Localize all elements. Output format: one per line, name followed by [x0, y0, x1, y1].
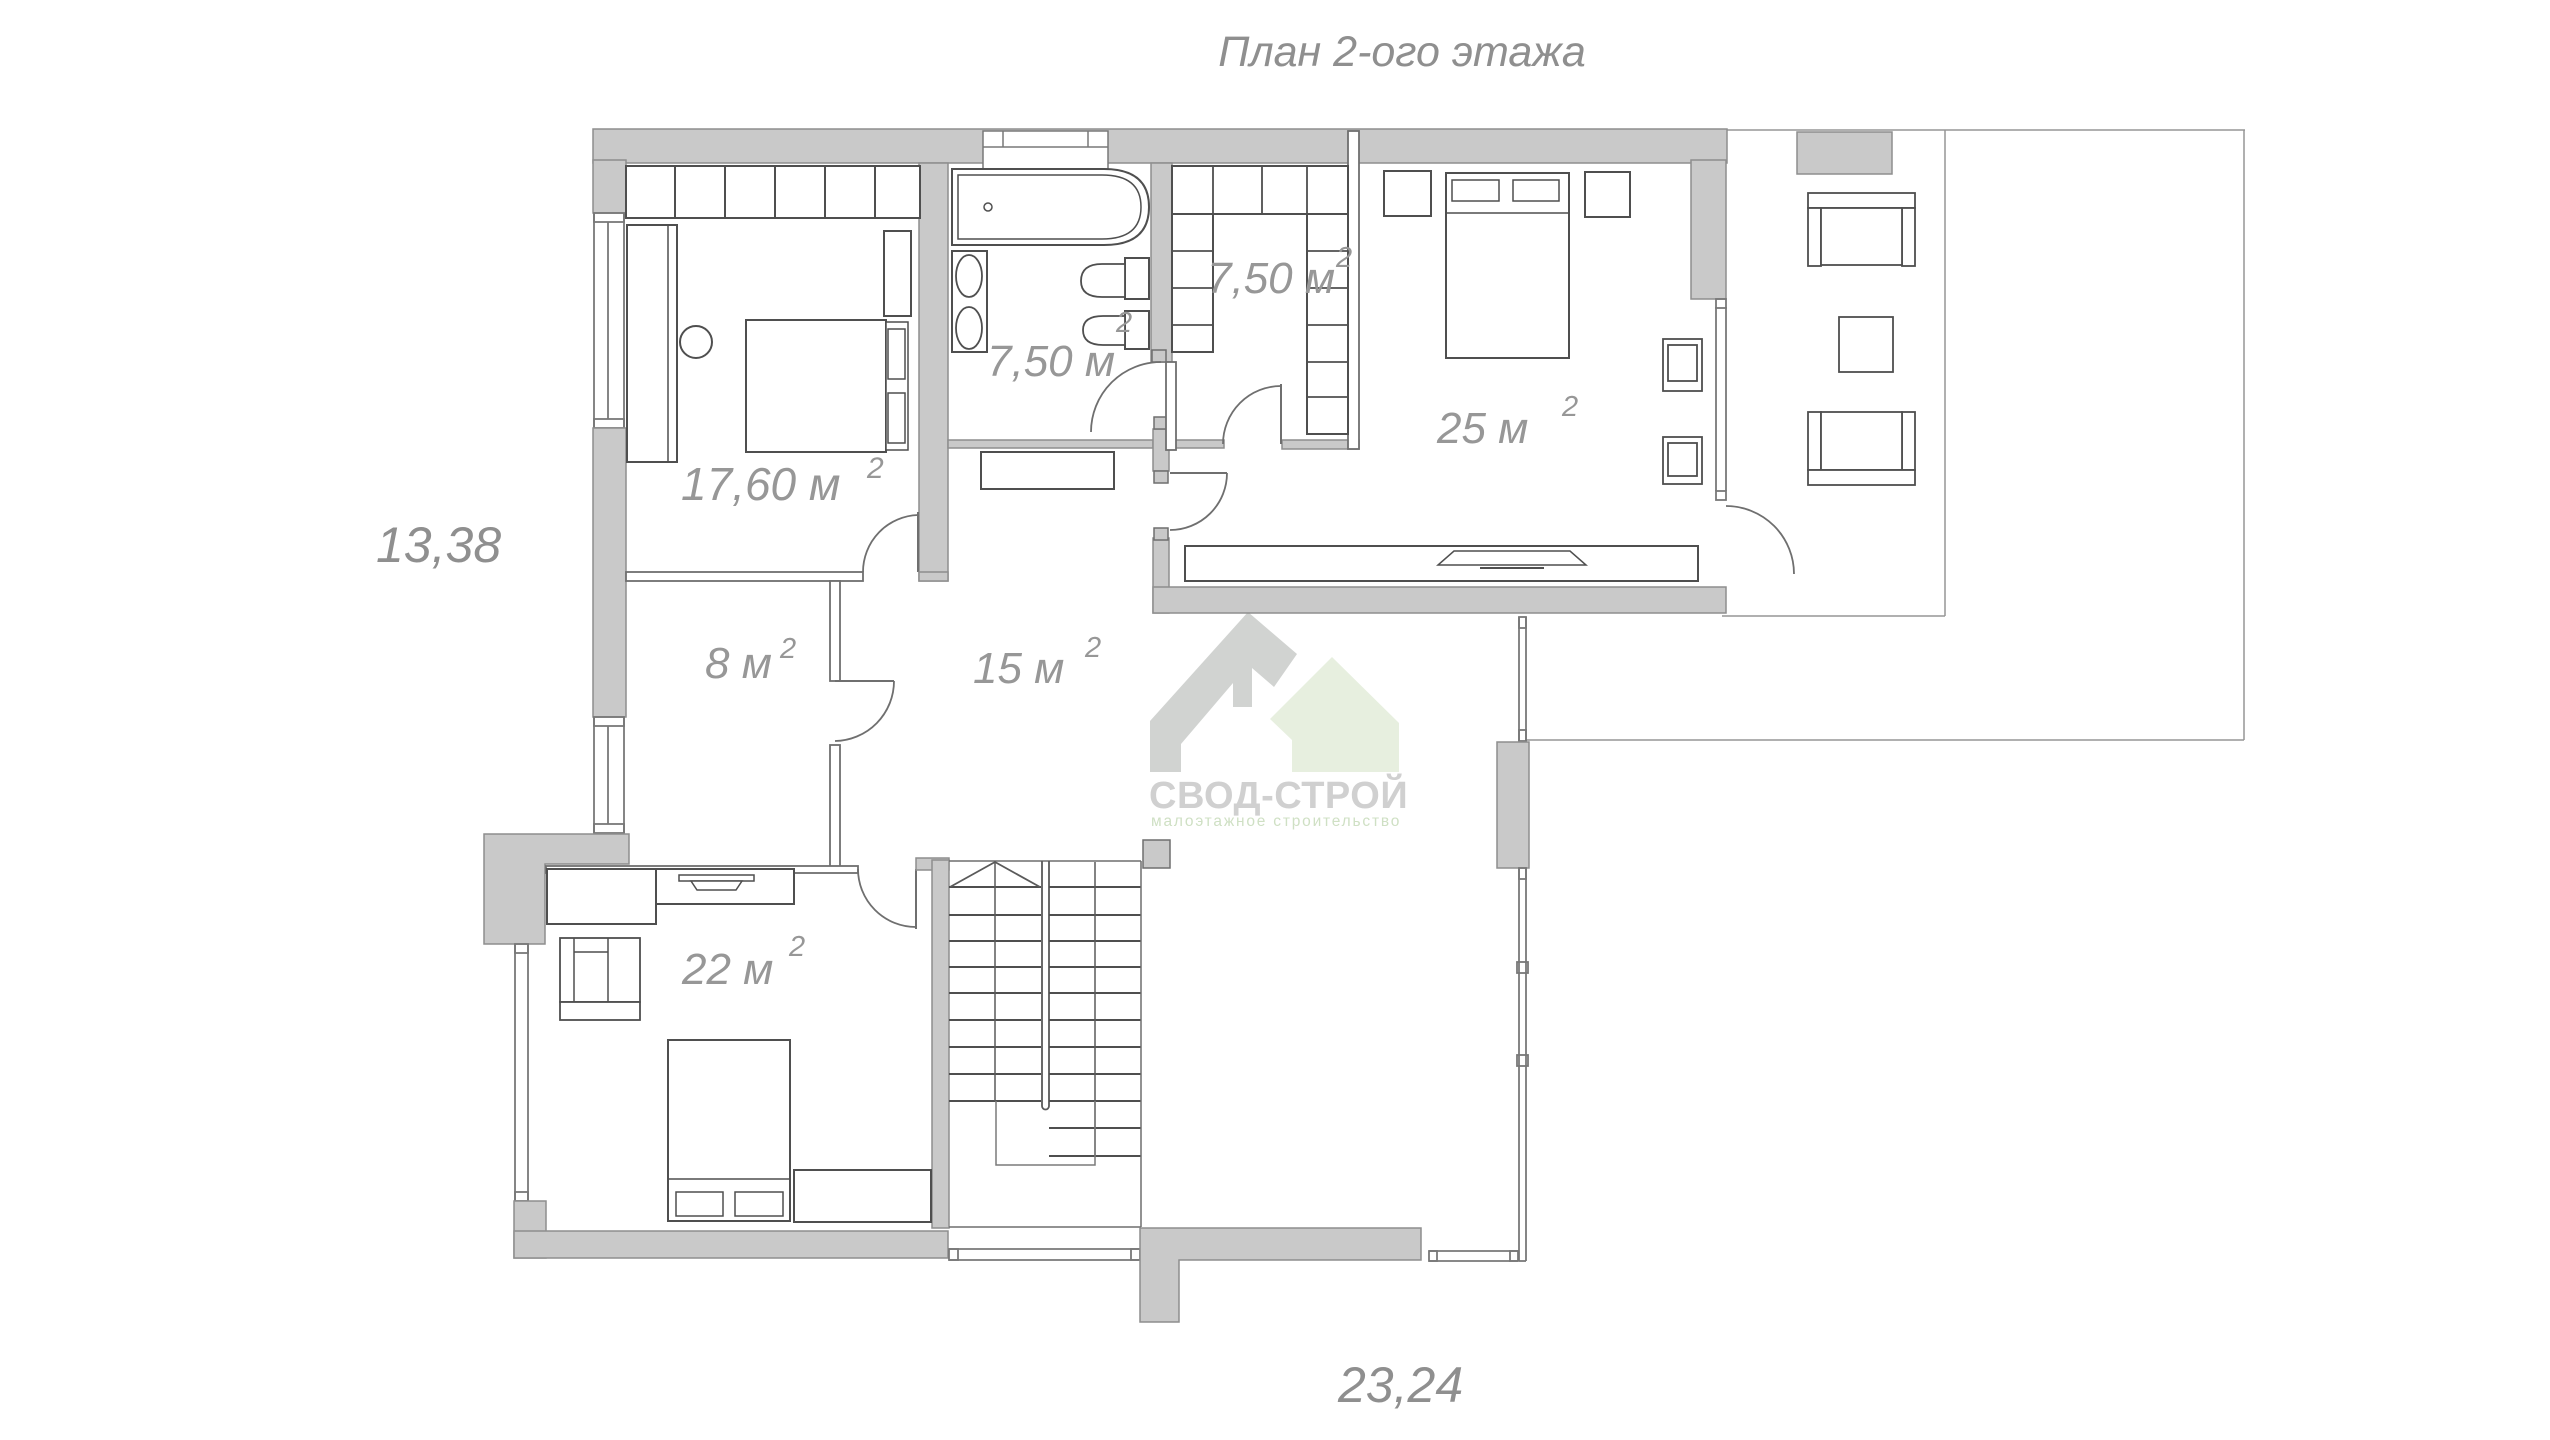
svg-text:25 м: 25 м	[1436, 404, 1528, 453]
svg-text:8 м: 8 м	[705, 639, 772, 688]
svg-text:2: 2	[1115, 307, 1132, 339]
svg-text:2: 2	[1084, 632, 1101, 664]
svg-text:23,24: 23,24	[1337, 1357, 1463, 1413]
svg-text:7,50 м: 7,50 м	[1207, 254, 1335, 303]
svg-text:7,50 м: 7,50 м	[987, 337, 1115, 386]
svg-text:17,60 м: 17,60 м	[681, 458, 840, 510]
svg-text:малоэтажное строительство: малоэтажное строительство	[1151, 813, 1401, 830]
svg-text:13,38: 13,38	[376, 517, 501, 573]
svg-text:План 2-ого этажа: План 2-ого этажа	[1218, 28, 1586, 76]
svg-text:15 м: 15 м	[973, 644, 1064, 693]
svg-text:22 м: 22 м	[681, 945, 773, 994]
svg-text:2: 2	[779, 633, 796, 665]
svg-text:2: 2	[788, 931, 805, 963]
svg-text:СВОД-СТРОЙ: СВОД-СТРОЙ	[1149, 772, 1408, 817]
svg-text:2: 2	[1561, 391, 1578, 423]
svg-text:2: 2	[866, 452, 884, 485]
svg-text:2: 2	[1335, 242, 1352, 274]
